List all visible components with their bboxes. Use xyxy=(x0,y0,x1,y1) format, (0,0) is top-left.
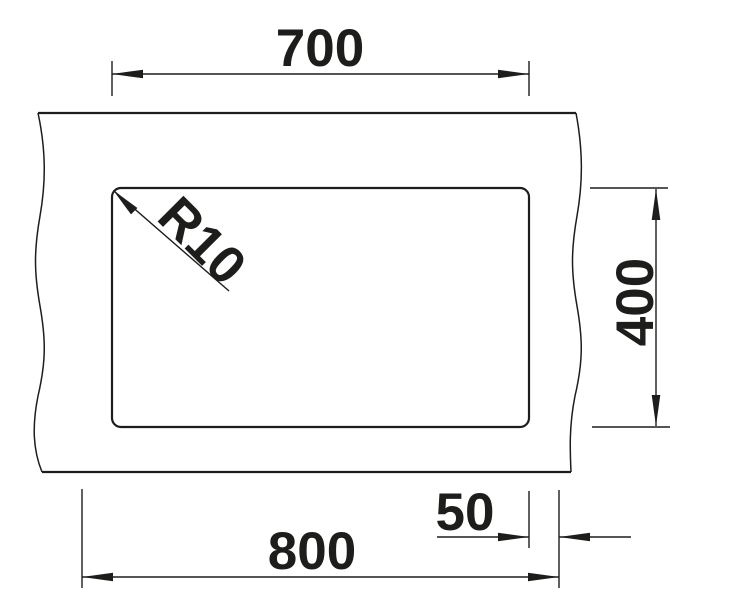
worktop-break-line-right xyxy=(570,113,581,472)
dim-800-arrow-right-icon xyxy=(528,573,559,582)
dim-cutout-width: 700 xyxy=(112,19,529,96)
technical-drawing-canvas: 700 400 R10 50 xyxy=(0,0,748,600)
dim-cutout-depth: 400 xyxy=(590,188,670,427)
worktop-break-line-left xyxy=(34,113,44,472)
dim-400-label: 400 xyxy=(606,258,665,346)
dim-800-arrow-left-icon xyxy=(82,573,113,582)
dim-edge-offset: 50 xyxy=(436,483,631,588)
dim-50-arrow-left-icon xyxy=(559,533,590,542)
sink-cutout-dimension-drawing: 700 400 R10 50 xyxy=(0,0,748,600)
dim-400-arrow-up-icon xyxy=(652,189,661,220)
dim-700-arrow-left-icon xyxy=(112,70,143,79)
dim-50-label: 50 xyxy=(436,483,495,542)
dim-50-arrow-right-icon xyxy=(498,533,529,542)
dim-700-arrow-right-icon xyxy=(498,70,529,79)
dim-400-arrow-down-icon xyxy=(652,395,661,426)
dim-700-label: 700 xyxy=(276,19,364,78)
dim-800-label: 800 xyxy=(268,522,356,581)
